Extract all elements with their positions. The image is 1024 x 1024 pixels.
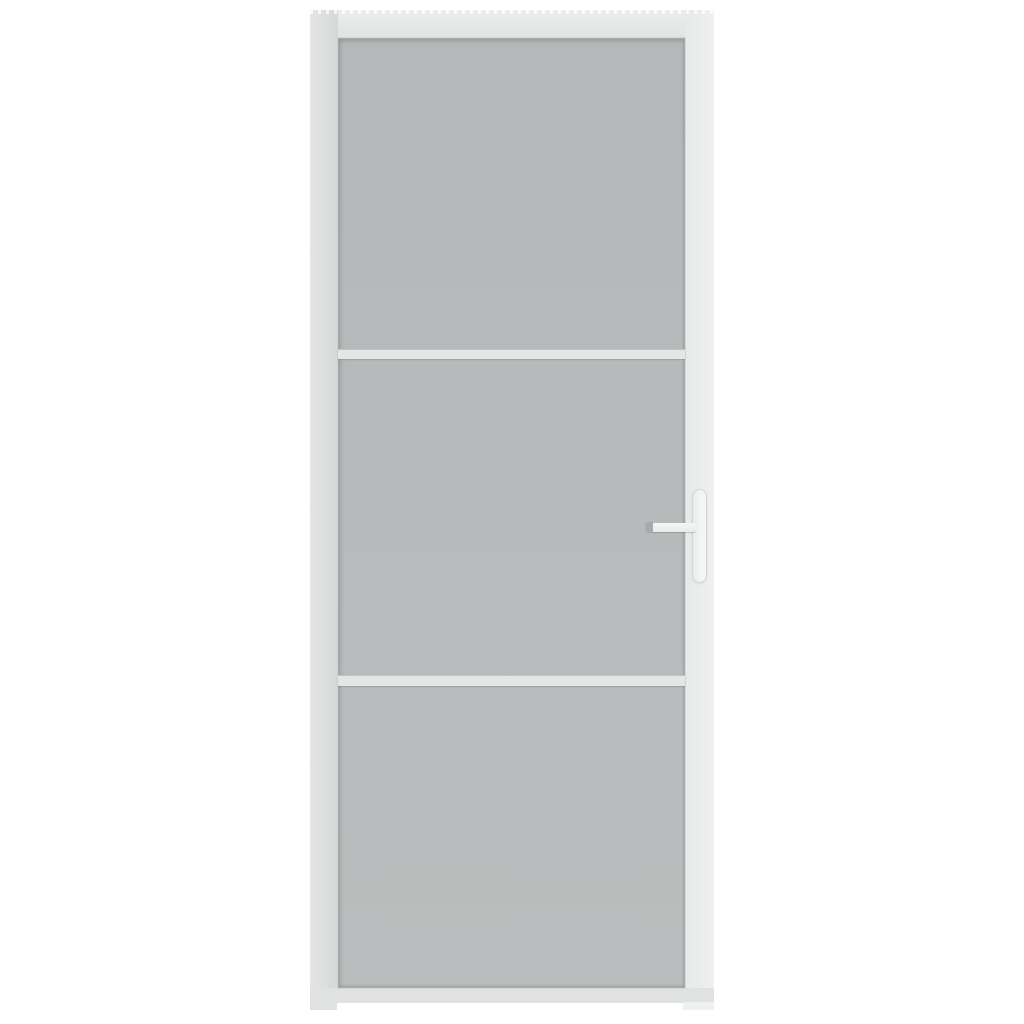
glass-divider-bar-upper (338, 350, 685, 359)
glass-divider-bar-lower (338, 676, 685, 686)
door-handle-lever-end-cap (645, 522, 653, 533)
door-top-edge-highlight (310, 10, 714, 14)
door-left-stile (310, 10, 338, 1003)
frosted-glass-panel (338, 38, 685, 988)
door-bottom-rail (310, 988, 714, 1003)
door-top-rail (310, 10, 714, 38)
door-handle-backplate (692, 489, 707, 583)
product-photo-background (0, 0, 1024, 1024)
door-left-jamb-foot (310, 1002, 337, 1010)
door (310, 10, 714, 1003)
door-handle-lever (650, 523, 696, 532)
door-right-jamb-foot (683, 1002, 714, 1010)
